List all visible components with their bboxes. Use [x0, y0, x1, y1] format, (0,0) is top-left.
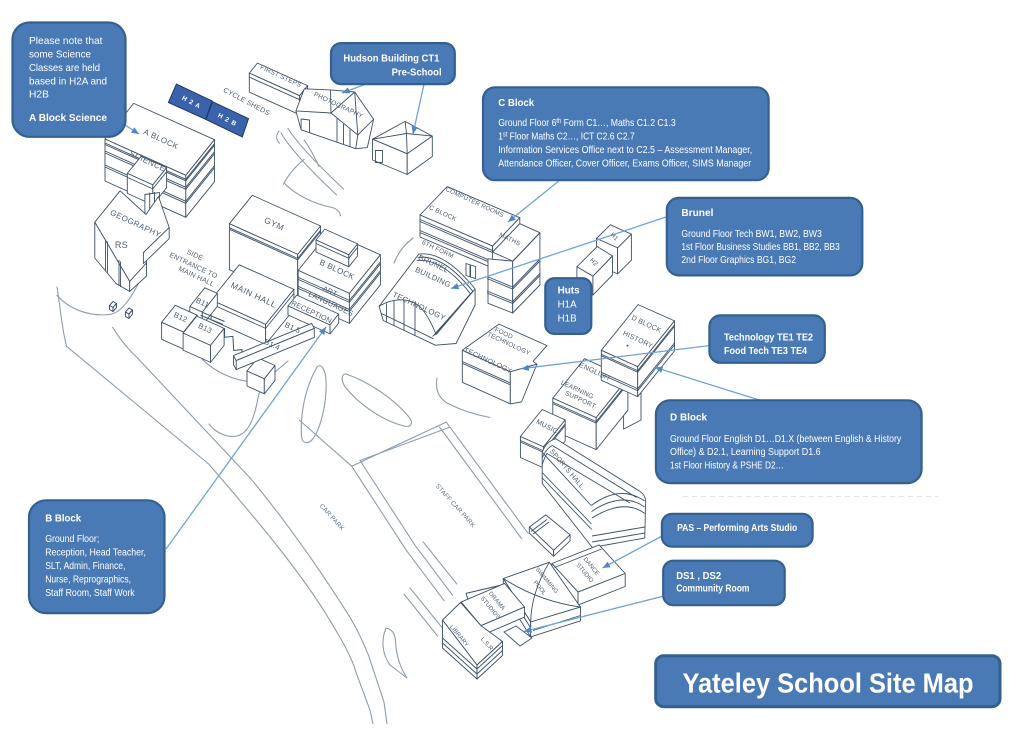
- svg-text:Ground Floor;: Ground Floor;: [45, 533, 99, 545]
- svg-text:some Science: some Science: [29, 49, 91, 61]
- svg-text:Food Tech TE3 TE4: Food Tech TE3 TE4: [724, 345, 807, 357]
- svg-text:Yateley School Site Map: Yateley School Site Map: [683, 668, 974, 699]
- svg-text:1st Floor Business Studies BB1: 1st Floor Business Studies BB1, BB2, BB3: [681, 241, 840, 253]
- svg-text:C Block: C Block: [498, 97, 534, 109]
- svg-text:Ground Floor English D1…D1.X (: Ground Floor English D1…D1.X (between En…: [670, 433, 902, 445]
- svg-text:Attendance Officer, Cover Offi: Attendance Officer, Cover Officer, Exams…: [498, 158, 751, 170]
- svg-text:SLT, Admin, Finance,: SLT, Admin, Finance,: [45, 560, 125, 572]
- svg-text:Pre-School: Pre-School: [392, 66, 442, 78]
- svg-text:Information Services Office ne: Information Services Office next to C2.5…: [498, 144, 752, 156]
- svg-text:Reception, Head Teacher,: Reception, Head Teacher,: [45, 547, 146, 559]
- svg-text:H1A: H1A: [558, 299, 577, 311]
- svg-text:Office) & D2.1, Learning Suppo: Office) & D2.1, Learning Support D1.6: [670, 446, 821, 458]
- svg-text:RS: RS: [115, 240, 128, 250]
- svg-text:DS1 , DS2: DS1 , DS2: [676, 570, 721, 582]
- svg-text:PAS – Performing Arts Studio: PAS – Performing Arts Studio: [677, 522, 797, 534]
- svg-text:A Block Science: A Block Science: [29, 112, 107, 124]
- svg-text:B Block: B Block: [45, 512, 81, 524]
- svg-text:Classes are held: Classes are held: [29, 62, 100, 74]
- svg-text:Technology TE1 TE2: Technology TE1 TE2: [724, 332, 813, 344]
- svg-text:H1B: H1B: [558, 312, 577, 324]
- svg-text:H2B: H2B: [29, 89, 49, 101]
- svg-text:1st Floor Maths C2…, ICT C2.6: 1st Floor Maths C2…, ICT C2.6 C2.7: [498, 131, 635, 143]
- svg-text:2nd Floor Graphics BG1, BG2: 2nd Floor Graphics BG1, BG2: [681, 254, 796, 266]
- svg-text:Please note that: Please note that: [29, 35, 103, 47]
- svg-text:Huts: Huts: [558, 284, 580, 296]
- svg-text:1st Floor History & PSHE D2…: 1st Floor History & PSHE D2…: [670, 459, 784, 471]
- svg-text:Ground Floor Tech BW1, BW2, BW: Ground Floor Tech BW1, BW2, BW3: [681, 228, 822, 240]
- svg-text:Hudson Building CT1: Hudson Building CT1: [343, 52, 439, 64]
- svg-text:Community Room: Community Room: [676, 583, 749, 595]
- svg-text:Staff Room, Staff Work: Staff Room, Staff Work: [45, 587, 135, 599]
- svg-text:Brunel: Brunel: [681, 207, 713, 219]
- svg-text:Nurse, Reprographics,: Nurse, Reprographics,: [45, 574, 131, 586]
- svg-text:based in H2A and: based in H2A and: [29, 75, 107, 87]
- svg-text:D Block: D Block: [670, 412, 707, 424]
- svg-text:Ground Floor 6th Form C1…, Mat: Ground Floor 6th Form C1…, Maths C1.2 C1…: [498, 117, 676, 129]
